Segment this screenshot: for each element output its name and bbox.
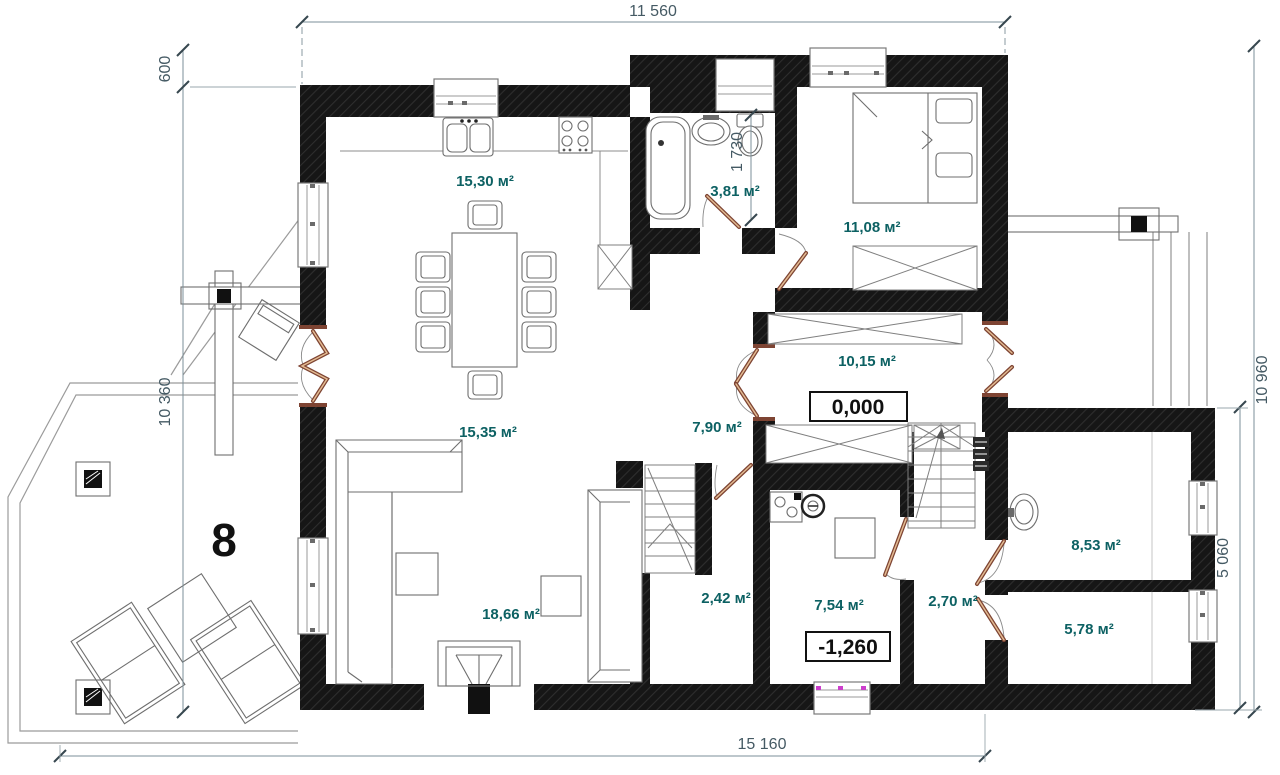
wing-window-1 [1189,481,1217,535]
dim-left-height-label: 10 360 [157,377,174,426]
dim-top-label: 11 560 [629,3,677,20]
label-room-a: 8,53 м² [1071,537,1120,554]
floor-plan-svg: 8 [0,0,1280,775]
boiler-window [814,682,870,714]
floor-plan-canvas: 8 [0,0,1280,775]
right-wall-upper [982,55,1008,325]
label-room-b: 5,78 м² [1064,621,1113,638]
dim-bathroom-label: 1 730 [729,132,746,172]
kitchen-sink [443,118,493,156]
label-corridor: 7,90 м² [692,419,741,436]
deck-post-1 [76,462,110,496]
label-lobby: 2,70 м² [928,593,977,610]
bedroom-bottom-wall [797,288,1008,312]
boiler-left-wall [753,463,770,684]
left-window-1 [298,183,328,267]
left-window-2 [298,538,328,634]
coffee-table-1 [396,553,438,595]
boiler-stove [770,492,802,522]
boiler-top-wall [770,463,900,490]
bathroom-bottom-wall-b [742,228,775,254]
bed [853,93,977,203]
level-lowered-label: -1,260 [818,636,878,659]
porch-post [1131,216,1147,232]
kitchen-window [434,79,498,117]
kitchen-vent-shaft [598,245,632,289]
hall-closet-top [768,314,962,344]
dim-wing-height-label: 5 060 [1215,538,1232,578]
wing-top-wall [982,408,1215,432]
dim-left-offset-label: 600 [157,56,174,83]
wing-right-wall [1191,408,1215,710]
bathroom-bedroom-wall [775,87,797,228]
label-stair-room: 2,42 м² [701,590,750,607]
lobby-right-wall-b [985,585,1008,595]
bedroom-door-stub [775,288,797,312]
boiler-unit [802,495,824,517]
dim-bottom-label: 15 160 [738,736,787,753]
label-kitchen: 15,30 м² [456,173,514,190]
living-pillar [616,461,643,488]
bathtub [646,117,690,219]
bedroom-wardrobe [853,246,977,290]
terrace-bifold-door [299,325,327,407]
label-hall: 10,15 м² [838,353,896,370]
label-living-lower: 18,66 м² [482,606,540,623]
stove [559,117,592,153]
terrace-number-label: 8 [211,514,237,566]
label-boiler: 7,54 м² [814,597,863,614]
porch-beam [996,216,1178,232]
bedroom-window [810,48,886,87]
wc-window [716,59,774,111]
wing-window-2 [1189,590,1217,642]
boiler-right-wall-b [900,580,914,684]
coffee-table-2 [541,576,581,616]
label-living-upper: 15,35 м² [459,424,517,441]
radiator [973,437,989,471]
level-ground-label: 0,000 [832,396,885,419]
deck-post-2 [76,680,110,714]
lobby-right-wall-a [985,432,1008,540]
label-bedroom: 11,08 м² [844,219,901,236]
dim-right-height-label: 10 960 [1254,355,1271,404]
sofa-right [588,490,642,682]
bathroom-bottom-wall-a [650,228,700,254]
stair-side-wall [695,463,712,575]
label-bathroom: 3,81 м² [710,183,759,200]
wing-separator-wall [985,580,1191,592]
lobby-right-wall-c [985,640,1008,684]
